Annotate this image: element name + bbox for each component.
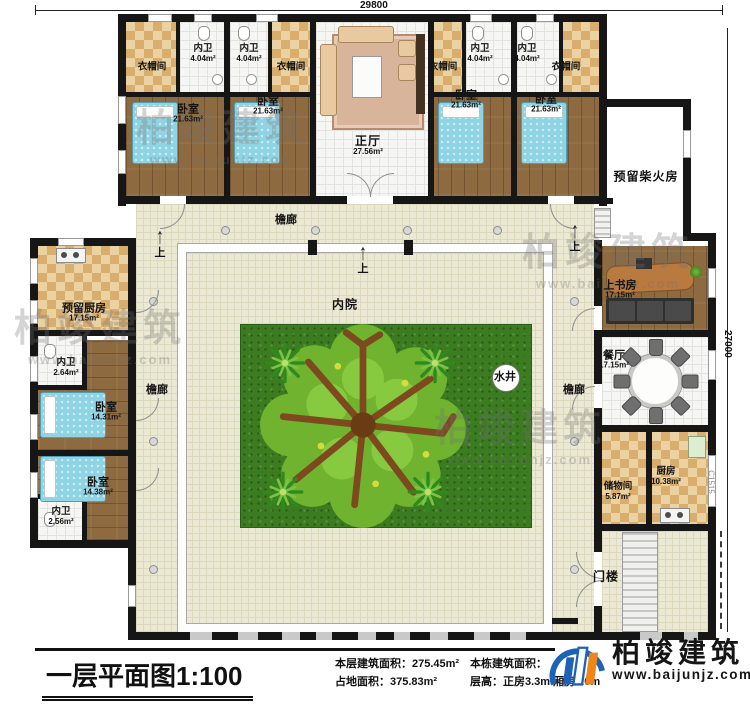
room-label-bedroom: 卧室21.63m² — [173, 103, 203, 124]
brand-name: 柏竣建筑 — [612, 638, 750, 667]
step-up-mark: ↑上 — [570, 223, 581, 253]
step-stone — [404, 240, 413, 255]
column — [493, 226, 502, 235]
wall — [38, 385, 87, 390]
palm-tree-icon — [406, 470, 450, 514]
sink-icon — [546, 74, 557, 85]
wall — [428, 22, 434, 196]
wall — [126, 196, 160, 204]
wall — [594, 240, 602, 306]
window-code-label: C1515 — [707, 470, 716, 494]
tv-cabinet-icon — [416, 34, 425, 114]
storage-floor — [602, 432, 646, 524]
room-label-courtyard: 内院 — [332, 298, 358, 311]
top-dimension-label: 29800 — [360, 0, 388, 11]
room-label-bedroom: 卧室14.38m² — [83, 476, 113, 497]
column — [221, 226, 230, 235]
room-label-bath: 内卫2.64m² — [53, 358, 78, 378]
room-label-bath: 内卫4.04m² — [467, 44, 492, 64]
cloakroom-3-floor — [434, 22, 462, 92]
wall — [186, 196, 347, 204]
sofa-icon — [606, 298, 694, 324]
palm-tree-icon — [261, 470, 305, 514]
gate-steps — [622, 532, 658, 632]
firewood-steps — [594, 208, 611, 238]
step-up-mark: ↑上 — [155, 229, 166, 259]
column — [570, 565, 579, 574]
sink-icon — [498, 74, 509, 85]
floor-plan: 29800 27000 — [0, 0, 750, 707]
chair-icon — [682, 375, 699, 389]
toilet-icon — [521, 26, 533, 41]
wall — [126, 92, 224, 97]
room-label-cloakroom: 衣帽间 — [429, 63, 458, 74]
wall — [268, 22, 272, 92]
window — [683, 130, 691, 158]
area-stats-left: 本层建筑面积：275.45m² 占地面积：375.83m² — [335, 656, 459, 691]
room-label-cloakroom: 衣帽间 — [552, 63, 581, 74]
window — [470, 14, 492, 22]
sink-icon — [212, 74, 223, 85]
wall — [552, 618, 578, 624]
room-label-reserved-kitchen: 预留厨房17.15m² — [62, 302, 106, 323]
toilet-icon — [238, 26, 250, 41]
room-label-bath: 内卫4.04m² — [190, 44, 215, 64]
window — [194, 14, 212, 22]
height-label: 层高： — [470, 676, 503, 688]
wall — [683, 99, 691, 241]
plan-title: 一层平面图1:100 — [42, 656, 253, 701]
wall — [574, 196, 599, 204]
fridge-icon — [688, 436, 706, 458]
top-dim-tick-right — [722, 5, 723, 15]
cloakroom-2-floor — [272, 22, 310, 92]
window — [510, 632, 526, 640]
pillow-icon — [44, 396, 56, 434]
land-area-label: 占地面积： — [335, 676, 390, 688]
window — [358, 632, 376, 640]
window — [30, 258, 38, 284]
brand-logo-icon — [548, 638, 606, 700]
room-label-bedroom: 卧室14.31m² — [91, 401, 121, 422]
toilet-icon — [44, 344, 56, 359]
wall — [559, 22, 563, 92]
window — [118, 150, 126, 174]
plant-icon — [690, 266, 702, 278]
toilet-icon — [472, 26, 484, 41]
land-area-value: 375.83m² — [390, 676, 437, 688]
room-label-bedroom: 卧室21.63m² — [451, 89, 481, 110]
window — [238, 632, 258, 640]
stove-icon — [56, 248, 86, 263]
window — [30, 356, 38, 382]
room-label-main-hall: 正厅27.56m² — [353, 135, 383, 157]
room-label-bath: 内卫2.56m² — [48, 507, 73, 527]
wall — [599, 198, 613, 204]
room-label-bedroom: 卧室21.63m² — [531, 93, 561, 114]
column — [570, 437, 579, 446]
window — [148, 14, 172, 22]
room-label-bath: 内卫4.04m² — [514, 44, 539, 64]
armchair-icon — [398, 64, 416, 81]
wall — [82, 336, 87, 390]
wall — [118, 14, 607, 22]
window — [394, 632, 410, 640]
wall — [128, 246, 136, 540]
pillow-icon — [136, 106, 174, 118]
room-label-study: 上书房17.15m² — [604, 279, 637, 300]
wall — [594, 606, 602, 632]
window — [316, 632, 332, 640]
up-arrow-icon: ↑ — [155, 225, 166, 248]
room-label-dining: 餐厅17.15m² — [599, 349, 629, 370]
up-arrow-icon: ↑ — [570, 219, 581, 242]
window — [536, 14, 554, 22]
canopy-dashed-line — [720, 531, 722, 629]
stove-icon — [660, 508, 690, 523]
brand-logo: 柏竣建筑 www.baijunjz.com — [548, 638, 750, 700]
pillow-icon — [44, 460, 56, 498]
armchair-icon — [398, 40, 416, 57]
toilet-icon — [198, 26, 210, 41]
room-label-veranda: 檐廊 — [146, 384, 168, 396]
window — [30, 300, 38, 324]
wall — [594, 425, 708, 432]
brand-text: 柏竣建筑 www.baijunjz.com — [612, 638, 750, 682]
wall — [30, 238, 38, 548]
floor-area-label: 本层建筑面积： — [335, 658, 412, 670]
sofa-icon — [338, 26, 394, 43]
column — [570, 297, 579, 306]
window — [474, 632, 490, 640]
brand-website: www.baijunjz.com — [612, 667, 750, 682]
window — [282, 632, 300, 640]
window — [30, 472, 38, 498]
window — [128, 585, 136, 607]
column — [403, 226, 412, 235]
room-label-cloakroom: 衣帽间 — [138, 63, 167, 74]
chair-icon — [649, 407, 663, 424]
room-label-gate: 门楼 — [593, 570, 619, 583]
wall — [224, 22, 230, 196]
title-block-divider — [35, 648, 555, 651]
wall — [30, 540, 136, 548]
palm-tree-icon — [413, 341, 457, 385]
up-arrow-icon: ↑ — [358, 241, 369, 264]
room-label-kitchen: 厨房10.38m² — [651, 467, 681, 487]
room-label-bedroom: 卧室21.63m² — [253, 95, 283, 116]
chair-icon — [614, 375, 631, 389]
sink-icon — [246, 74, 257, 85]
room-label-veranda: 檐廊 — [275, 214, 297, 226]
room-label-firewood: 预留柴火房 — [613, 170, 678, 183]
building-area-label: 本栋建筑面积： — [470, 658, 547, 670]
cloakroom-4-floor — [563, 22, 599, 92]
room-label-veranda: 檐廊 — [563, 384, 585, 396]
window — [30, 414, 38, 440]
room-label-bath: 内卫4.04m² — [236, 44, 261, 64]
sofa-icon — [320, 44, 337, 116]
wall — [599, 14, 607, 206]
window — [708, 268, 716, 298]
wall — [462, 22, 466, 92]
column — [149, 565, 158, 574]
window — [708, 350, 716, 380]
computer-icon — [636, 258, 652, 269]
wall — [594, 524, 708, 531]
room-label-cloakroom: 衣帽间 — [277, 63, 306, 74]
window — [58, 238, 84, 246]
top-dim-tick-left — [35, 5, 36, 15]
floor-area-value: 275.45m² — [412, 658, 459, 670]
room-label-well: 水井 — [494, 371, 516, 383]
right-dimension-label: 27000 — [722, 330, 733, 358]
wall — [594, 330, 708, 337]
window — [256, 14, 278, 22]
coffee-table-icon — [352, 56, 382, 98]
wall — [393, 196, 548, 204]
cloakroom-1-floor — [126, 22, 176, 92]
room-label-storage: 储物间5.87m² — [604, 482, 633, 502]
window — [190, 632, 212, 640]
wall — [310, 22, 316, 196]
wall — [599, 99, 691, 107]
window — [430, 632, 448, 640]
wall — [176, 22, 180, 92]
column — [149, 437, 158, 446]
chair-icon — [649, 339, 663, 356]
palm-tree-icon — [263, 341, 307, 385]
step-stone — [308, 240, 317, 255]
window — [118, 96, 126, 124]
step-up-mark: ↑上 — [358, 245, 369, 275]
column — [311, 226, 320, 235]
